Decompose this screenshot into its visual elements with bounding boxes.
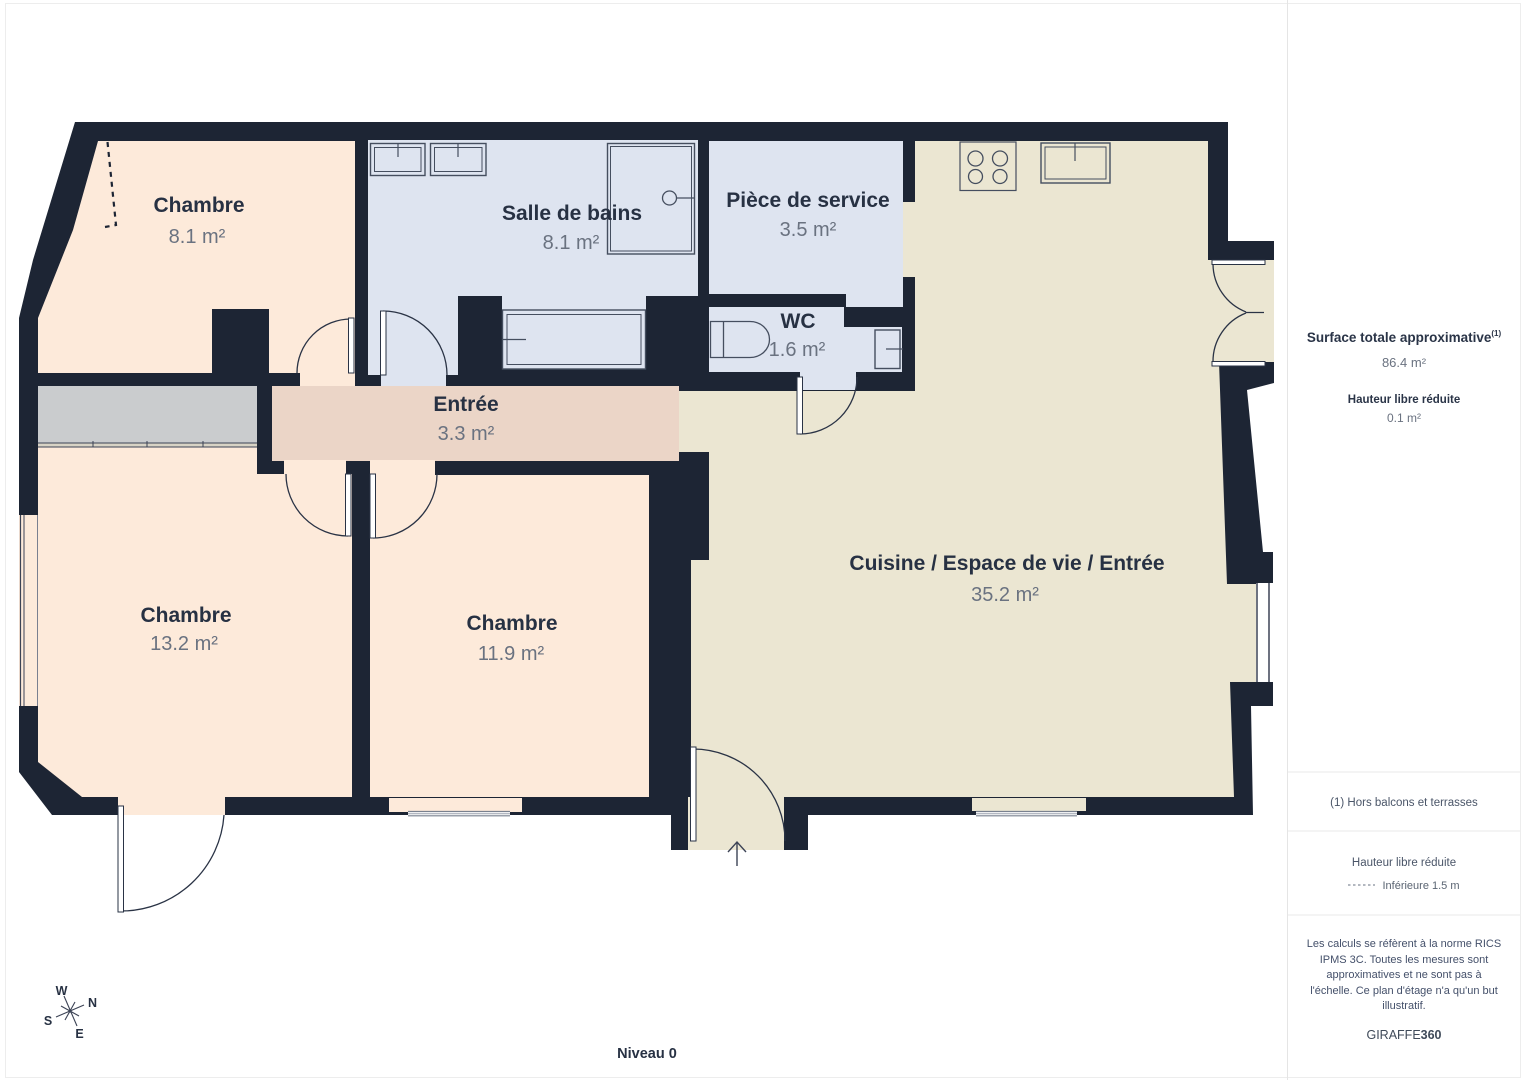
svg-text:Surface totale approximative(1: Surface totale approximative(1) bbox=[1307, 329, 1502, 345]
svg-text:WC: WC bbox=[781, 310, 816, 333]
svg-text:Chambre: Chambre bbox=[140, 604, 231, 627]
svg-text:11.9 m²: 11.9 m² bbox=[478, 643, 545, 665]
svg-text:1.6 m²: 1.6 m² bbox=[769, 339, 826, 361]
svg-text:GIRAFFE360: GIRAFFE360 bbox=[1366, 1028, 1441, 1042]
svg-text:Hauteur libre réduite: Hauteur libre réduite bbox=[1348, 394, 1460, 406]
svg-text:(1) Hors balcons et terrasses: (1) Hors balcons et terrasses bbox=[1330, 797, 1478, 809]
svg-text:IPMS 3C. Toutes les mesures so: IPMS 3C. Toutes les mesures sont bbox=[1320, 954, 1489, 966]
svg-text:Les calculs se réfèrent à la n: Les calculs se réfèrent à la norme RICS bbox=[1307, 938, 1501, 950]
svg-text:35.2 m²: 35.2 m² bbox=[971, 584, 1039, 606]
svg-text:Pièce de service: Pièce de service bbox=[726, 189, 889, 212]
svg-text:8.1 m²: 8.1 m² bbox=[543, 232, 600, 254]
svg-text:Salle de bains: Salle de bains bbox=[502, 202, 642, 225]
svg-text:W: W bbox=[56, 984, 68, 998]
svg-text:approximatives et ne sont pas: approximatives et ne sont pas à bbox=[1326, 969, 1482, 981]
svg-text:3.5 m²: 3.5 m² bbox=[780, 219, 837, 241]
svg-text:l'échelle. Ce plan d'étage n'a: l'échelle. Ce plan d'étage n'a qu'un but bbox=[1310, 985, 1498, 997]
svg-text:0.1 m²: 0.1 m² bbox=[1387, 411, 1421, 425]
svg-text:Chambre: Chambre bbox=[466, 612, 557, 635]
svg-text:Entrée: Entrée bbox=[433, 393, 498, 416]
svg-text:Chambre: Chambre bbox=[153, 194, 244, 217]
svg-text:Hauteur libre réduite: Hauteur libre réduite bbox=[1352, 857, 1456, 869]
svg-text:Inférieure 1.5 m: Inférieure 1.5 m bbox=[1382, 880, 1459, 892]
svg-text:Niveau 0: Niveau 0 bbox=[617, 1046, 677, 1062]
svg-text:86.4 m²: 86.4 m² bbox=[1382, 355, 1427, 370]
svg-text:13.2 m²: 13.2 m² bbox=[150, 633, 218, 655]
svg-text:S: S bbox=[44, 1014, 52, 1028]
svg-text:N: N bbox=[88, 996, 97, 1010]
svg-text:3.3 m²: 3.3 m² bbox=[438, 423, 495, 445]
svg-text:Cuisine / Espace de vie / Entr: Cuisine / Espace de vie / Entrée bbox=[849, 552, 1164, 575]
svg-text:E: E bbox=[75, 1027, 83, 1041]
svg-text:illustratif.: illustratif. bbox=[1382, 1000, 1425, 1012]
svg-text:8.1 m²: 8.1 m² bbox=[169, 226, 226, 248]
